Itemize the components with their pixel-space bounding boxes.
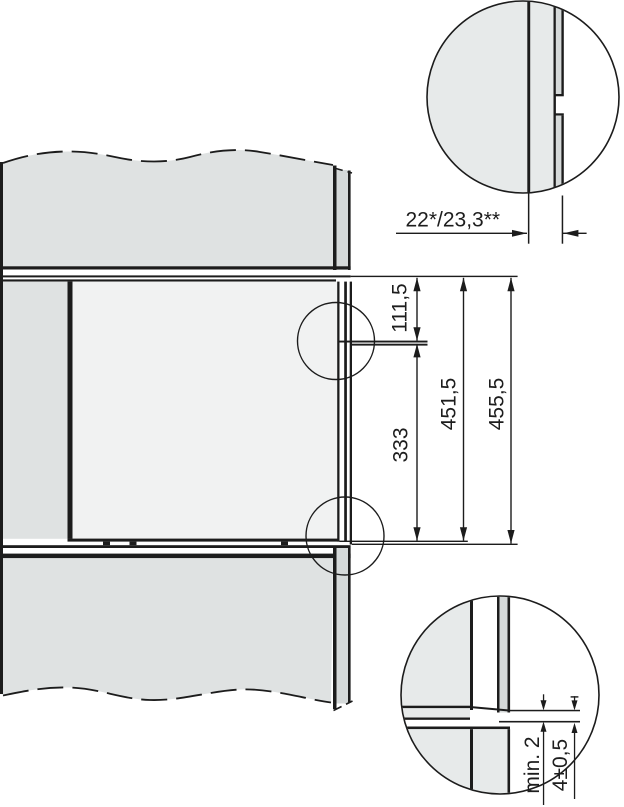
furniture-front-outer-line: [350, 282, 352, 545]
detail-top-strip-upper-right-line: [561, 0, 563, 94]
furniture-front-inner-line: [344, 282, 347, 542]
dimension-rail-offset-bottom: 333: [390, 344, 421, 541]
cabinet-rear-panel: [3, 282, 68, 539]
bottom-front-edge-strip: [337, 548, 349, 704]
detail-shelf-fill-left: [396, 729, 470, 804]
bottom-front-edge-left-line: [333, 548, 337, 709]
bottom-panel-top-line: [0, 554, 351, 559]
top-front-edge-right-line: [348, 171, 351, 271]
appliance-front-edge-line: [337, 282, 339, 542]
niche-rear-edge-line: [68, 282, 73, 539]
detail-bottom-appliance-edge-line: [470, 592, 473, 710]
detail-gap-upper-line: [509, 710, 580, 712]
detail-bottom-strip: [500, 592, 508, 713]
top-front-edge-left-line: [333, 166, 337, 271]
top-front-edge-strip: [337, 170, 349, 270]
cabinet-left-edge-line: [0, 162, 3, 694]
detail-bottom-gap-white: [396, 720, 470, 727]
detail-bottom-strip-left-line: [497, 592, 500, 713]
dimension-front-panel-thickness: 22*/23,3**: [396, 209, 587, 237]
appliance-bottom-extension-line: [340, 541, 468, 542]
appliance-foot: [130, 542, 137, 546]
detail-gap-lower-line: [499, 721, 580, 723]
dimension-appliance-height: 451,5: [438, 278, 468, 541]
detail-top-extension-line-right: [562, 196, 564, 244]
dimension-label-111-5: 111,5: [389, 283, 412, 332]
niche-top-extension-line: [351, 276, 518, 277]
detail-view-bottom-gap: min. 2 4±0,5: [396, 592, 599, 807]
bottom-cabinet-panel: [3, 558, 333, 702]
appliance-bottom-line: [68, 539, 340, 542]
top-panel-underside-line: [0, 266, 351, 269]
detail-bottom-strip-right-line: [508, 592, 511, 713]
mounting-rail-lower-line: [351, 344, 428, 346]
top-cabinet-panel: [3, 150, 333, 266]
dimension-niche-height: 455,5: [486, 278, 515, 544]
detail-top-front-edge-line: [527, 0, 530, 205]
dimension-label-455-5: 455,5: [486, 378, 509, 431]
dimension-rail-offset-top: 111,5: [389, 278, 421, 341]
dimension-bottom-clearance: 4±0,5: [549, 696, 578, 799]
detail-top-strip-left-line: [554, 0, 556, 205]
detail-top-panel-fill: [424, 0, 554, 205]
detail-shelf-divider-right: [508, 729, 511, 801]
niche-bottom-extension-line: [352, 544, 518, 545]
dimension-label-4-0-5: 4±0,5: [549, 739, 572, 791]
detail-shelf-top-line: [396, 727, 510, 730]
detail-top-strip-lower: [556, 116, 562, 206]
appliance-foot: [281, 542, 288, 546]
appliance-top-line: [0, 279, 336, 281]
detail-top-extension-line-left: [528, 190, 530, 244]
dimension-label-333: 333: [390, 427, 413, 462]
bottom-front-edge-right-line: [348, 548, 351, 703]
niche-top-line: [0, 275, 351, 277]
detail-view-front-edge: 22*/23,3**: [396, 0, 619, 244]
installation-diagram-page: 111,5 333 451,5 455,5: [0, 0, 624, 807]
detail-top-strip-lower-right-line: [561, 116, 563, 206]
dimension-label-min-2: min. 2: [521, 736, 544, 793]
detail-appliance-bottom-bottom-line: [396, 718, 470, 720]
detail-top-strip-upper: [556, 0, 562, 94]
mounting-rail-upper-line: [339, 341, 428, 343]
detail-top-notch-upper-cap: [554, 94, 564, 96]
niche-floor-line: [0, 545, 351, 548]
detail-top-notch-lower-cap: [554, 113, 564, 115]
appliance-front: [73, 282, 338, 539]
installation-diagram-svg: 111,5 333 451,5 455,5: [0, 0, 624, 807]
appliance-foot: [103, 542, 110, 546]
detail-appliance-bottom-top-line: [396, 706, 470, 708]
dimension-label-451-5: 451,5: [438, 378, 461, 431]
dimension-label-22-23-3: 22*/23,3**: [406, 209, 501, 232]
